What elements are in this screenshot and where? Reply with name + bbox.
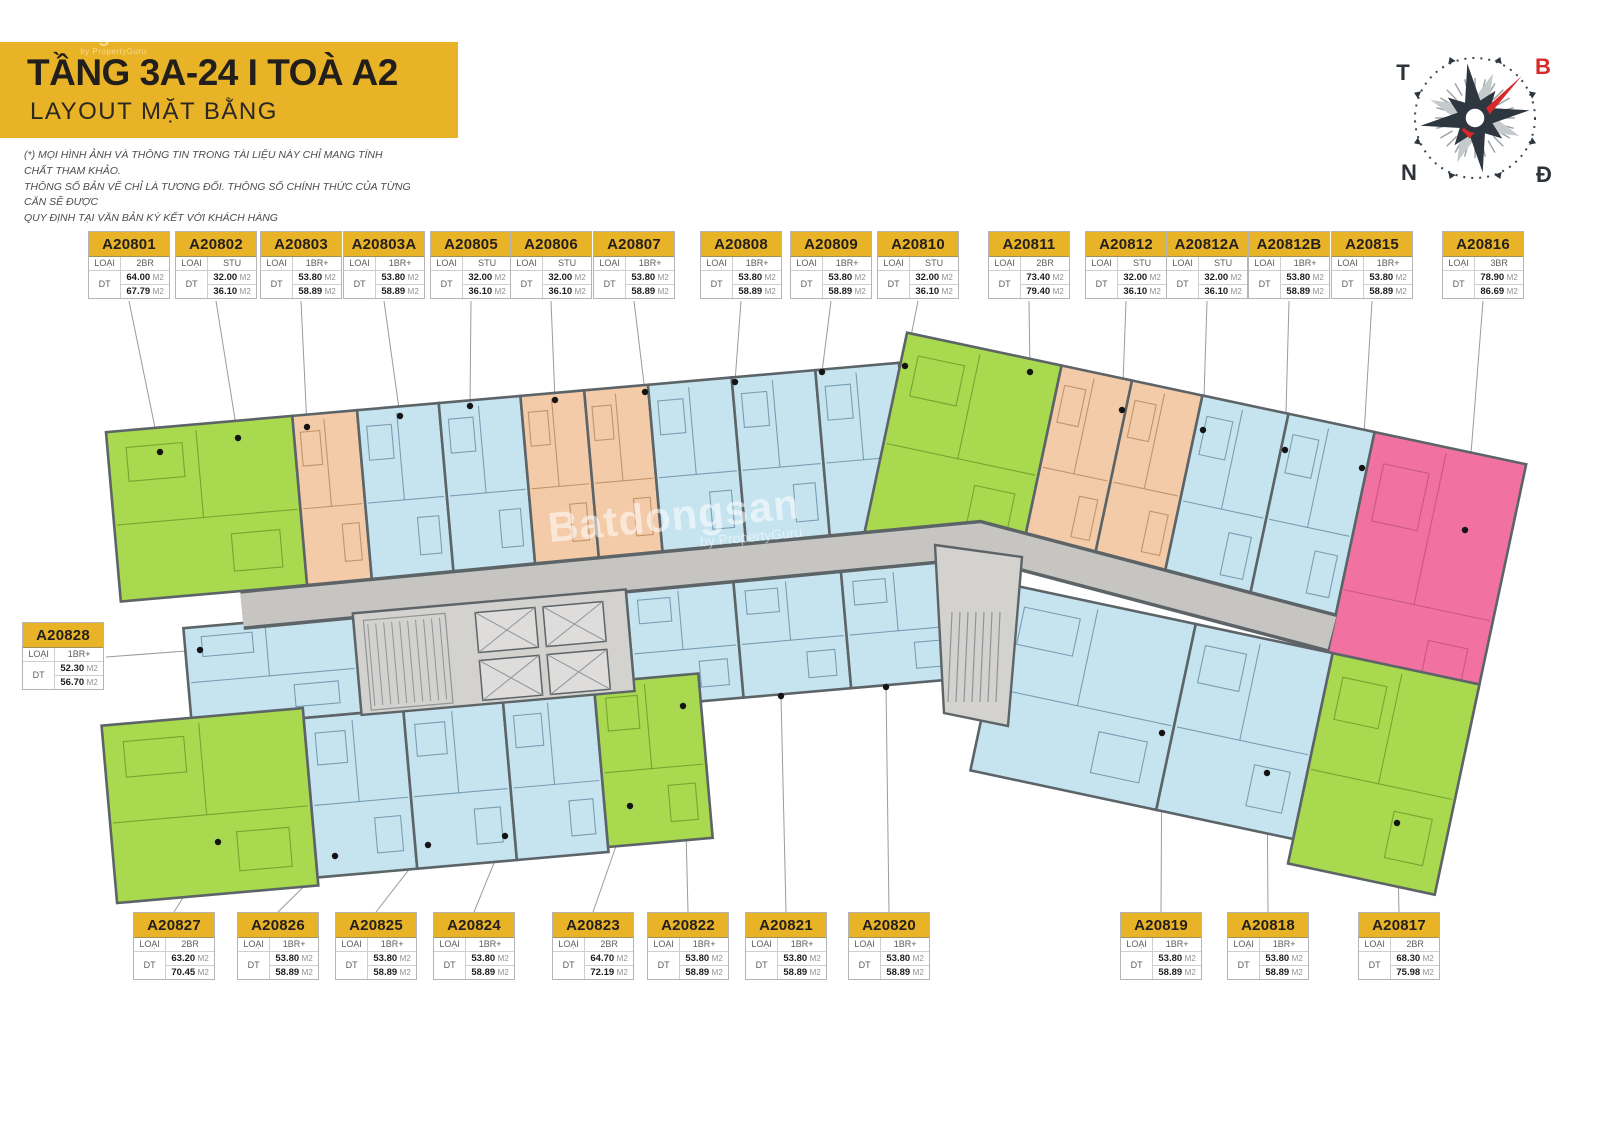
unit-type: 1BR+ <box>269 938 318 951</box>
unit-area-label: DT <box>553 951 584 979</box>
unit-area-label: DT <box>1086 270 1117 298</box>
unit-type: 1BR+ <box>465 938 514 951</box>
unit-type-label: LOẠI CH <box>134 938 165 951</box>
unit-info-table: LOẠI CH 1BR+ DT 53.80 M2 58.89 M2 <box>701 257 781 298</box>
compass-east-label: Đ <box>1536 162 1552 187</box>
unit-type: 2BR <box>584 938 633 951</box>
unit-area-label: DT <box>746 951 777 979</box>
unit-info-table: LOẠI CH 2BR DT 64.00 M2 67.79 M2 <box>89 257 169 298</box>
unit-area-1: 53.80 M2 <box>880 951 929 965</box>
unit-info-table: LOẠI CH 1BR+ DT 53.80 M2 58.89 M2 <box>261 257 341 298</box>
unit-id: A20824 <box>434 913 514 938</box>
unit-label-A20803A: A20803A LOẠI CH 1BR+ DT 53.80 M2 58.89 M… <box>343 231 425 299</box>
unit-area-1: 32.00 M2 <box>207 270 256 284</box>
unit-type-label: LOẠI CH <box>553 938 584 951</box>
unit-area-2: 58.89 M2 <box>777 965 826 979</box>
unit-area-label: DT <box>238 951 269 979</box>
compass-sunburst-ray <box>1447 136 1457 146</box>
unit-label-A20802: A20802 LOẠI CH STU DT 32.00 M2 36.10 M2 <box>175 231 257 299</box>
unit-area-1: 53.80 M2 <box>732 270 781 284</box>
unit-area-1: 53.80 M2 <box>625 270 674 284</box>
unit-area-1: 53.80 M2 <box>269 951 318 965</box>
unit-area-1: 68.30 M2 <box>1390 951 1439 965</box>
unit-type-label: LOẠI CH <box>849 938 880 951</box>
compass-south-label: N <box>1401 160 1417 185</box>
unit-shape-A20825 <box>403 701 517 869</box>
unit-area-2: 58.89 M2 <box>1280 284 1329 298</box>
unit-area-label: DT <box>1359 951 1390 979</box>
leader-dot <box>1359 465 1365 471</box>
unit-info-table: LOẠI CH 2BR DT 64.70 M2 72.19 M2 <box>553 938 633 979</box>
unit-id: A20803A <box>344 232 424 257</box>
disclaimer-text: (*) MỌI HÌNH ẢNH VÀ THÔNG TIN TRONG TÀI … <box>24 148 414 227</box>
unit-type-label: LOẠI CH <box>648 938 679 951</box>
leader-line <box>470 301 471 406</box>
unit-info-table: LOẠI CH 1BR+ DT 53.80 M2 58.89 M2 <box>434 938 514 979</box>
unit-info-table: LOẠI CH STU DT 32.00 M2 36.10 M2 <box>1086 257 1166 298</box>
disclaimer-line-1: (*) MỌI HÌNH ẢNH VÀ THÔNG TIN TRONG TÀI … <box>24 148 414 180</box>
page-subtitle: LAYOUT MẶT BẰNG <box>30 98 278 126</box>
unit-info-table: LOẠI CH STU DT 32.00 M2 36.10 M2 <box>431 257 511 298</box>
unit-info-table: LOẠI CH 1BR+ DT 53.80 M2 58.89 M2 <box>1228 938 1308 979</box>
unit-label-A20808: A20808 LOẠI CH 1BR+ DT 53.80 M2 58.89 M2 <box>700 231 782 299</box>
compass-ring-marker <box>1494 172 1501 179</box>
leader-dot <box>680 703 686 709</box>
unit-id: A20806 <box>511 232 591 257</box>
unit-label-A20823: A20823 LOẠI CH 2BR DT 64.70 M2 72.19 M2 <box>552 912 634 980</box>
unit-type: STU <box>1198 257 1247 270</box>
unit-area-1: 53.80 M2 <box>375 270 424 284</box>
unit-label-A20812: A20812 LOẠI CH STU DT 32.00 M2 36.10 M2 <box>1085 231 1167 299</box>
unit-id: A20820 <box>849 913 929 938</box>
unit-type: STU <box>462 257 511 270</box>
unit-label-A20806: A20806 LOẠI CH STU DT 32.00 M2 36.10 M2 <box>510 231 592 299</box>
unit-type: 1BR+ <box>1259 938 1308 951</box>
unit-area-label: DT <box>1167 270 1198 298</box>
unit-id: A20812B <box>1249 232 1329 257</box>
unit-area-2: 67.79 M2 <box>120 284 169 298</box>
unit-label-A20811: A20811 LOẠI CH 2BR DT 73.40 M2 79.40 M2 <box>988 231 1070 299</box>
unit-area-2: 70.45 M2 <box>165 965 214 979</box>
unit-id: A20817 <box>1359 913 1439 938</box>
compass-sunburst-ray <box>1493 136 1503 146</box>
unit-shape-A20826 <box>304 709 418 877</box>
unit-area-2: 58.89 M2 <box>732 284 781 298</box>
unit-area-label: DT <box>1443 270 1474 298</box>
unit-area-2: 36.10 M2 <box>1198 284 1247 298</box>
unit-type: 1BR+ <box>679 938 728 951</box>
unit-label-A20803: A20803 LOẠI CH 1BR+ DT 53.80 M2 58.89 M2 <box>260 231 342 299</box>
unit-label-A20824: A20824 LOẠI CH 1BR+ DT 53.80 M2 58.89 M2 <box>433 912 515 980</box>
unit-area-2: 56.70 M2 <box>54 675 103 689</box>
compass-ring-marker <box>1529 137 1536 144</box>
unit-info-table: LOẠI CH 2BR DT 73.40 M2 79.40 M2 <box>989 257 1069 298</box>
unit-info-table: LOẠI CH 1BR+ DT 53.80 M2 58.89 M2 <box>849 938 929 979</box>
leader-line <box>634 301 645 392</box>
unit-id: A20802 <box>176 232 256 257</box>
unit-type-label: LOẠI CH <box>344 257 375 270</box>
leader-line <box>551 301 555 400</box>
unit-shape-A20823 <box>594 673 713 847</box>
unit-area-label: DT <box>594 270 625 298</box>
unit-area-1: 53.80 M2 <box>679 951 728 965</box>
leader-dot <box>819 369 825 375</box>
leader-dot <box>1462 527 1468 533</box>
unit-id: A20809 <box>791 232 871 257</box>
unit-type-label: LOẠI CH <box>23 648 54 661</box>
unit-area-label: DT <box>511 270 542 298</box>
unit-label-A20807: A20807 LOẠI CH 1BR+ DT 53.80 M2 58.89 M2 <box>593 231 675 299</box>
unit-id: A20828 <box>23 623 103 648</box>
leader-dot <box>552 397 558 403</box>
unit-id: A20805 <box>431 232 511 257</box>
unit-type-label: LOẠI CH <box>1249 257 1280 270</box>
unit-area-label: DT <box>701 270 732 298</box>
unit-area-1: 53.80 M2 <box>1259 951 1308 965</box>
leader-dot <box>1394 820 1400 826</box>
leader-dot <box>425 842 431 848</box>
unit-type: 1BR+ <box>1152 938 1201 951</box>
unit-area-2: 58.89 M2 <box>679 965 728 979</box>
unit-area-1: 53.80 M2 <box>1280 270 1329 284</box>
leader-dot <box>397 413 403 419</box>
unit-info-table: LOẠI CH 1BR+ DT 53.80 M2 58.89 M2 <box>1121 938 1201 979</box>
unit-area-2: 58.89 M2 <box>880 965 929 979</box>
unit-type-label: LOẠI CH <box>1167 257 1198 270</box>
unit-info-table: LOẠI CH 2BR DT 68.30 M2 75.98 M2 <box>1359 938 1439 979</box>
unit-area-label: DT <box>134 951 165 979</box>
unit-area-2: 79.40 M2 <box>1020 284 1069 298</box>
unit-area-label: DT <box>176 270 207 298</box>
unit-label-A20812B: A20812B LOẠI CH 1BR+ DT 53.80 M2 58.89 M… <box>1248 231 1330 299</box>
unit-info-table: LOẠI CH 1BR+ DT 53.80 M2 58.89 M2 <box>648 938 728 979</box>
unit-type: STU <box>1117 257 1166 270</box>
unit-type-label: LOẠI CH <box>434 938 465 951</box>
unit-type-label: LOẠI CH <box>1359 938 1390 951</box>
unit-area-2: 58.89 M2 <box>822 284 871 298</box>
unit-id: A20821 <box>746 913 826 938</box>
unit-area-1: 52.30 M2 <box>54 661 103 675</box>
disclaimer-line-3: QUY ĐỊNH TẠI VĂN BẢN KÝ KẾT VỚI KHÁCH HÀ… <box>24 211 414 227</box>
unit-area-2: 58.89 M2 <box>375 284 424 298</box>
unit-type-label: LOẠI CH <box>1086 257 1117 270</box>
unit-type-label: LOẠI CH <box>336 938 367 951</box>
unit-area-label: DT <box>1121 951 1152 979</box>
unit-area-label: DT <box>648 951 679 979</box>
unit-area-label: DT <box>878 270 909 298</box>
unit-area-2: 36.10 M2 <box>207 284 256 298</box>
compass-sunburst-ray <box>1440 131 1452 138</box>
unit-type: 2BR <box>120 257 169 270</box>
unit-type: 1BR+ <box>880 938 929 951</box>
unit-area-label: DT <box>89 270 120 298</box>
unit-label-A20821: A20821 LOẠI CH 1BR+ DT 53.80 M2 58.89 M2 <box>745 912 827 980</box>
compass-ring-marker <box>1448 57 1455 64</box>
unit-type: 1BR+ <box>1280 257 1329 270</box>
unit-type-label: LOẠI CH <box>1228 938 1259 951</box>
unit-label-A20801: A20801 LOẠI CH 2BR DT 64.00 M2 67.79 M2 <box>88 231 170 299</box>
unit-area-2: 36.10 M2 <box>1117 284 1166 298</box>
unit-type: 2BR <box>1020 257 1069 270</box>
unit-type-label: LOẠI CH <box>511 257 542 270</box>
unit-type-label: LOẠI CH <box>791 257 822 270</box>
unit-type-label: LOẠI CH <box>176 257 207 270</box>
unit-label-A20816: A20816 LOẠI CH 3BR DT 78.90 M2 86.69 M2 <box>1442 231 1524 299</box>
unit-area-2: 58.89 M2 <box>465 965 514 979</box>
unit-type: 1BR+ <box>54 648 103 661</box>
leader-line <box>781 696 786 912</box>
unit-type-label: LOẠI CH <box>701 257 732 270</box>
leader-dot <box>157 449 163 455</box>
unit-type: STU <box>909 257 958 270</box>
unit-info-table: LOẠI CH 1BR+ DT 53.80 M2 58.89 M2 <box>1249 257 1329 298</box>
leader-dot <box>1027 369 1033 375</box>
unit-info-table: LOẠI CH 3BR DT 78.90 M2 86.69 M2 <box>1443 257 1523 298</box>
unit-label-A20817: A20817 LOẠI CH 2BR DT 68.30 M2 75.98 M2 <box>1358 912 1440 980</box>
compass-ring-marker <box>1414 137 1421 144</box>
unit-area-2: 58.89 M2 <box>1363 284 1412 298</box>
unit-info-table: LOẠI CH 1BR+ DT 53.80 M2 58.89 M2 <box>238 938 318 979</box>
unit-id: A20815 <box>1332 232 1412 257</box>
unit-type-label: LOẠI CH <box>1121 938 1152 951</box>
unit-id: A20811 <box>989 232 1069 257</box>
unit-id: A20826 <box>238 913 318 938</box>
leader-dot <box>235 435 241 441</box>
unit-area-1: 78.90 M2 <box>1474 270 1523 284</box>
unit-area-label: DT <box>23 661 54 689</box>
unit-type-label: LOẠI CH <box>989 257 1020 270</box>
unit-type: 1BR+ <box>625 257 674 270</box>
unit-shape-A20821 <box>733 571 851 698</box>
unit-type-label: LOẠI CH <box>261 257 292 270</box>
compass-west-label: T <box>1396 60 1410 85</box>
unit-area-2: 72.19 M2 <box>584 965 633 979</box>
unit-info-table: LOẠI CH STU DT 32.00 M2 36.10 M2 <box>176 257 256 298</box>
leader-dot <box>197 647 203 653</box>
unit-area-label: DT <box>431 270 462 298</box>
page-title: TẦNG 3A-24 I TOÀ A2 <box>27 52 398 94</box>
unit-area-2: 36.10 M2 <box>542 284 591 298</box>
leader-line <box>886 687 889 912</box>
unit-label-A20825: A20825 LOẠI CH 1BR+ DT 53.80 M2 58.89 M2 <box>335 912 417 980</box>
unit-type: 1BR+ <box>375 257 424 270</box>
unit-shape-A20801 <box>106 416 307 602</box>
leader-dot <box>332 853 338 859</box>
leader-dot <box>902 363 908 369</box>
compass-north-label: B <box>1535 54 1551 79</box>
unit-id: A20807 <box>594 232 674 257</box>
leader-dot <box>1159 730 1165 736</box>
compass-ring-marker <box>1494 57 1501 64</box>
unit-area-2: 58.89 M2 <box>269 965 318 979</box>
unit-shape-A20827 <box>102 708 319 903</box>
unit-area-2: 75.98 M2 <box>1390 965 1439 979</box>
unit-area-1: 32.00 M2 <box>542 270 591 284</box>
unit-id: A20818 <box>1228 913 1308 938</box>
unit-info-table: LOẠI CH 1BR+ DT 53.80 M2 58.89 M2 <box>344 257 424 298</box>
unit-id: A20825 <box>336 913 416 938</box>
leader-dot <box>883 684 889 690</box>
unit-id: A20822 <box>648 913 728 938</box>
unit-info-table: LOẠI CH 2BR DT 63.20 M2 70.45 M2 <box>134 938 214 979</box>
leader-dot <box>1119 407 1125 413</box>
leader-line <box>822 301 831 372</box>
unit-type-label: LOẠI CH <box>431 257 462 270</box>
unit-type: 2BR <box>165 938 214 951</box>
unit-label-A20820: A20820 LOẠI CH 1BR+ DT 53.80 M2 58.89 M2 <box>848 912 930 980</box>
unit-area-label: DT <box>849 951 880 979</box>
unit-area-label: DT <box>1228 951 1259 979</box>
unit-area-1: 53.80 M2 <box>822 270 871 284</box>
unit-id: A20816 <box>1443 232 1523 257</box>
unit-label-A20809: A20809 LOẠI CH 1BR+ DT 53.80 M2 58.89 M2 <box>790 231 872 299</box>
leader-dot <box>1264 770 1270 776</box>
compass-sunburst-ray <box>1455 83 1462 95</box>
leader-dot <box>732 379 738 385</box>
leader-dot <box>1200 427 1206 433</box>
compass-sunburst-ray <box>1488 141 1495 153</box>
unit-id: A20819 <box>1121 913 1201 938</box>
page: Batdongsan by PropertyGuru TẦNG 3A-24 I … <box>0 0 1600 1131</box>
unit-id: A20812 <box>1086 232 1166 257</box>
unit-area-1: 32.00 M2 <box>1198 270 1247 284</box>
leader-line <box>216 301 238 438</box>
unit-label-A20826: A20826 LOẠI CH 1BR+ DT 53.80 M2 58.89 M2 <box>237 912 319 980</box>
unit-info-table: LOẠI CH STU DT 32.00 M2 36.10 M2 <box>511 257 591 298</box>
leader-dot <box>502 833 508 839</box>
unit-area-label: DT <box>434 951 465 979</box>
unit-id: A20810 <box>878 232 958 257</box>
unit-area-2: 58.89 M2 <box>1152 965 1201 979</box>
unit-type: 1BR+ <box>822 257 871 270</box>
unit-area-1: 63.20 M2 <box>165 951 214 965</box>
unit-info-table: LOẠI CH STU DT 32.00 M2 36.10 M2 <box>878 257 958 298</box>
unit-id: A20808 <box>701 232 781 257</box>
unit-label-A20819: A20819 LOẠI CH 1BR+ DT 53.80 M2 58.89 M2 <box>1120 912 1202 980</box>
leader-dot <box>215 839 221 845</box>
unit-info-table: LOẠI CH 1BR+ DT 53.80 M2 58.89 M2 <box>336 938 416 979</box>
compass-hub <box>1463 106 1487 130</box>
unit-type-label: LOẠI CH <box>1443 257 1474 270</box>
unit-type-label: LOẠI CH <box>89 257 120 270</box>
unit-area-label: DT <box>261 270 292 298</box>
leader-dot <box>1282 447 1288 453</box>
unit-type: 1BR+ <box>777 938 826 951</box>
compass-rose: T B N Đ <box>1382 30 1572 208</box>
unit-area-1: 53.80 M2 <box>367 951 416 965</box>
unit-type: STU <box>542 257 591 270</box>
leader-line <box>384 301 400 416</box>
unit-area-label: DT <box>791 270 822 298</box>
disclaimer-line-2: THÔNG SỐ BẢN VẼ CHỈ LÀ TƯƠNG ĐỐI. THÔNG … <box>24 180 414 212</box>
leader-dot <box>304 424 310 430</box>
unit-area-1: 53.80 M2 <box>465 951 514 965</box>
leader-line <box>301 301 307 427</box>
unit-id: A20812A <box>1167 232 1247 257</box>
unit-area-label: DT <box>1249 270 1280 298</box>
unit-area-2: 36.10 M2 <box>909 284 958 298</box>
unit-label-A20828: A20828 LOẠI CH 1BR+ DT 52.30 M2 56.70 M2 <box>22 622 104 690</box>
unit-label-A20822: A20822 LOẠI CH 1BR+ DT 53.80 M2 58.89 M2 <box>647 912 729 980</box>
unit-type: 3BR <box>1474 257 1523 270</box>
unit-area-1: 53.80 M2 <box>292 270 341 284</box>
unit-area-1: 64.70 M2 <box>584 951 633 965</box>
unit-label-A20818: A20818 LOẠI CH 1BR+ DT 53.80 M2 58.89 M2 <box>1227 912 1309 980</box>
unit-label-A20815: A20815 LOẠI CH 1BR+ DT 53.80 M2 58.89 M2 <box>1331 231 1413 299</box>
unit-info-table: LOẠI CH 1BR+ DT 53.80 M2 58.89 M2 <box>791 257 871 298</box>
unit-type: 1BR+ <box>292 257 341 270</box>
unit-label-A20827: A20827 LOẠI CH 2BR DT 63.20 M2 70.45 M2 <box>133 912 215 980</box>
unit-label-A20810: A20810 LOẠI CH STU DT 32.00 M2 36.10 M2 <box>877 231 959 299</box>
unit-shape-A20824 <box>503 693 609 860</box>
unit-area-label: DT <box>344 270 375 298</box>
unit-type: 2BR <box>1390 938 1439 951</box>
unit-type: 1BR+ <box>732 257 781 270</box>
unit-label-A20812A: A20812A LOẠI CH STU DT 32.00 M2 36.10 M2 <box>1166 231 1248 299</box>
unit-info-table: LOẠI CH 1BR+ DT 52.30 M2 56.70 M2 <box>23 648 103 689</box>
unit-area-label: DT <box>336 951 367 979</box>
leader-dot <box>778 693 784 699</box>
unit-area-2: 58.89 M2 <box>367 965 416 979</box>
unit-id: A20827 <box>134 913 214 938</box>
unit-type-label: LOẠI CH <box>594 257 625 270</box>
unit-area-2: 58.89 M2 <box>625 284 674 298</box>
unit-info-table: LOẠI CH STU DT 32.00 M2 36.10 M2 <box>1167 257 1247 298</box>
unit-area-2: 58.89 M2 <box>292 284 341 298</box>
unit-type: 1BR+ <box>1363 257 1412 270</box>
unit-area-label: DT <box>1332 270 1363 298</box>
unit-info-table: LOẠI CH 1BR+ DT 53.80 M2 58.89 M2 <box>746 938 826 979</box>
unit-area-label: DT <box>989 270 1020 298</box>
compass-sunburst-ray <box>1447 90 1457 100</box>
unit-area-1: 53.80 M2 <box>1363 270 1412 284</box>
unit-area-1: 32.00 M2 <box>1117 270 1166 284</box>
leader-dot <box>642 389 648 395</box>
compass-ring-marker <box>1448 172 1455 179</box>
unit-type-label: LOẠI CH <box>238 938 269 951</box>
unit-area-2: 58.89 M2 <box>1259 965 1308 979</box>
leader-dot <box>467 403 473 409</box>
unit-id: A20801 <box>89 232 169 257</box>
unit-type: STU <box>207 257 256 270</box>
unit-info-table: LOẠI CH 1BR+ DT 53.80 M2 58.89 M2 <box>1332 257 1412 298</box>
unit-label-A20805: A20805 LOẠI CH STU DT 32.00 M2 36.10 M2 <box>430 231 512 299</box>
compass-ring-marker <box>1414 91 1421 98</box>
unit-type-label: LOẠI CH <box>1332 257 1363 270</box>
unit-type-label: LOẠI CH <box>878 257 909 270</box>
unit-area-2: 36.10 M2 <box>462 284 511 298</box>
unit-info-table: LOẠI CH 1BR+ DT 53.80 M2 58.89 M2 <box>594 257 674 298</box>
leader-line <box>735 301 741 382</box>
unit-type: 1BR+ <box>367 938 416 951</box>
unit-id: A20823 <box>553 913 633 938</box>
unit-id: A20803 <box>261 232 341 257</box>
unit-area-1: 32.00 M2 <box>909 270 958 284</box>
unit-area-1: 53.80 M2 <box>1152 951 1201 965</box>
unit-area-1: 32.00 M2 <box>462 270 511 284</box>
unit-area-1: 64.00 M2 <box>120 270 169 284</box>
unit-area-2: 86.69 M2 <box>1474 284 1523 298</box>
title-banner: Batdongsan by PropertyGuru TẦNG 3A-24 I … <box>0 42 458 138</box>
unit-area-1: 73.40 M2 <box>1020 270 1069 284</box>
unit-type-label: LOẠI CH <box>746 938 777 951</box>
unit-area-1: 53.80 M2 <box>777 951 826 965</box>
leader-dot <box>627 803 633 809</box>
